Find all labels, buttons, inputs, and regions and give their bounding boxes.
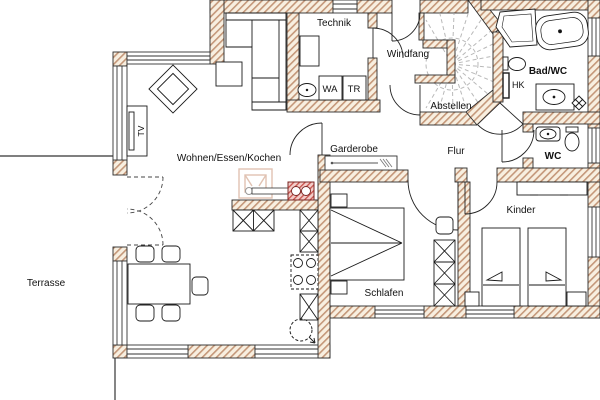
room-label-bad-wc: Bad/WC [529,66,567,77]
floor-plan: TV [0,0,600,400]
window-bad [588,18,600,56]
corner-carousel [290,319,315,343]
room-label-kinder: Kinder [507,205,537,216]
window-kinder-east [588,207,600,257]
dining-set [128,246,208,321]
side-table [465,292,479,306]
room-label-windfang: Windfang [387,49,429,60]
door-windfang-flur [390,85,420,115]
room-label-schlafen: Schlafen [365,288,404,299]
wardrobe-closet [325,156,397,170]
toilet-bad [509,58,526,71]
window-top-left [127,52,210,64]
room-label-wc: WC [545,151,562,162]
window-living-south-1 [127,345,188,358]
window-left-upper [113,66,127,160]
chair [436,217,453,234]
toilet-tank [503,57,508,70]
room-label-wohnen: Wohnen/Essen/Kochen [177,153,281,164]
floor-plan-drawing: TV [0,0,600,400]
cooktop [291,255,318,289]
door-wc [502,130,534,162]
nightstand [331,281,347,294]
chimney [288,182,314,200]
nightstand [331,194,347,207]
window-technik [333,0,357,13]
boiler [300,36,319,66]
kinder-furniture [465,182,587,306]
washer-label: WA [323,84,339,95]
coffee-table [216,62,242,86]
room-label-garderobe: Garderobe [330,144,378,155]
desk [517,182,587,195]
window-kinder-south [466,306,514,318]
bad-fixtures [496,9,590,110]
window-left-lower [113,261,127,345]
window-schlafen [375,306,424,318]
bed-single [528,228,566,306]
wc-toilet-tank [566,127,578,132]
window-living-south-2 [255,345,318,358]
stove-pipe [246,188,289,195]
sofa [226,13,286,110]
room-label-abstellen: Abstellen [430,101,471,112]
tv-label: TV [136,125,146,136]
terrace-french-door [127,177,163,245]
radiator [503,73,509,98]
bed-double [330,194,404,294]
front-door [392,13,420,41]
bathtub [534,11,590,52]
wc-toilet [565,133,579,151]
bed-single [482,228,520,306]
room-label-terrasse: Terrasse [27,278,66,289]
radiator-label: HK [512,80,525,90]
room-label-technik: Technik [317,18,352,29]
door-living-flur [290,123,322,155]
side-table [567,292,586,306]
wc-fixtures [536,127,579,151]
room-label-flur: Flur [447,146,465,157]
window-wc [588,128,600,163]
dryer-label: TR [348,84,361,95]
wardrobe-schlafen [434,240,455,306]
armchair [149,65,197,113]
